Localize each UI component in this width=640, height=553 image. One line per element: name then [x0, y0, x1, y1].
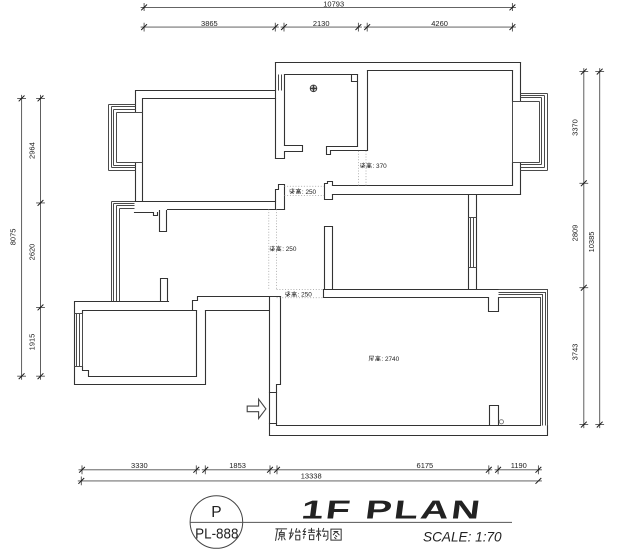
- svg-text:13338: 13338: [301, 471, 322, 480]
- svg-text:: 2740: : 2740: [381, 356, 399, 363]
- svg-text:PL-888: PL-888: [195, 525, 238, 542]
- svg-text:10385: 10385: [587, 232, 596, 253]
- svg-text:2964: 2964: [27, 142, 36, 159]
- svg-text:P: P: [211, 504, 221, 521]
- svg-text:3370: 3370: [571, 119, 580, 136]
- svg-text:3330: 3330: [131, 461, 148, 470]
- svg-text:: 370: : 370: [373, 163, 388, 170]
- svg-text:: 250: : 250: [302, 189, 317, 196]
- svg-text:: 250: : 250: [298, 292, 313, 299]
- svg-text:1190: 1190: [511, 461, 527, 470]
- svg-text:1853: 1853: [229, 461, 246, 470]
- svg-text:: 250: : 250: [282, 246, 297, 253]
- svg-text:2620: 2620: [27, 244, 36, 261]
- svg-text:6175: 6175: [417, 461, 434, 470]
- svg-text:1F PLAN: 1F PLAN: [300, 496, 484, 525]
- svg-text:3865: 3865: [201, 19, 218, 28]
- svg-text:2809: 2809: [571, 225, 580, 242]
- svg-text:SCALE: 1:70: SCALE: 1:70: [423, 530, 502, 545]
- svg-text:2130: 2130: [313, 19, 330, 28]
- svg-text:1915: 1915: [27, 334, 36, 351]
- svg-text:3743: 3743: [571, 344, 580, 361]
- svg-text:10793: 10793: [323, 0, 344, 8]
- svg-text:8075: 8075: [8, 229, 17, 246]
- svg-text:4260: 4260: [431, 19, 448, 28]
